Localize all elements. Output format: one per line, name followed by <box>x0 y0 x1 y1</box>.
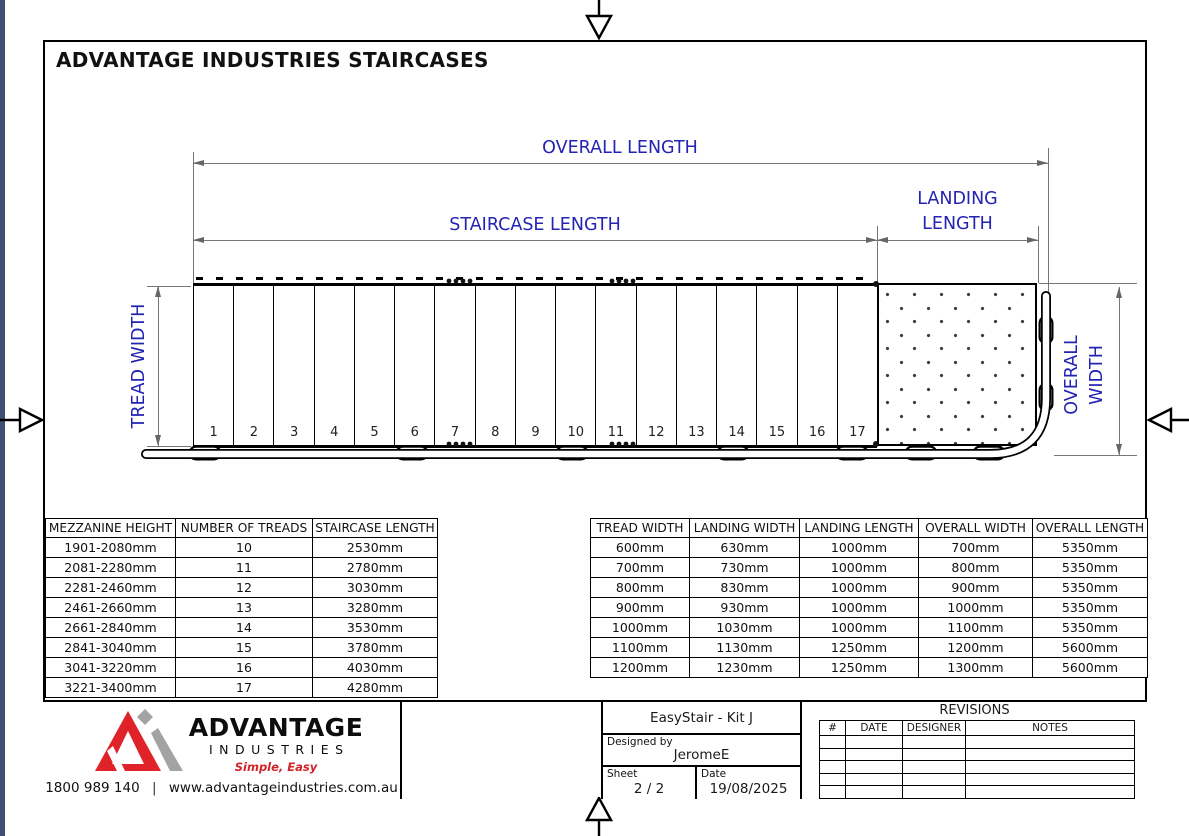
table-cell: 3030mm <box>313 578 438 598</box>
revision-empty-cell <box>820 786 846 799</box>
table-cell: 3530mm <box>313 618 438 638</box>
tread: 6 <box>395 286 435 445</box>
project-name: EasyStair - Kit J <box>603 702 800 735</box>
table-cell: 800mm <box>591 578 690 598</box>
revision-empty-cell <box>846 761 903 774</box>
table-cell: 1000mm <box>919 598 1033 618</box>
dim-line-landing-length <box>877 240 1038 241</box>
tread-number: 4 <box>330 425 338 445</box>
table-cell: 11 <box>176 558 313 578</box>
tread-number: 12 <box>648 425 665 445</box>
revisions-cell: REVISIONS #DATEDESIGNERNOTES <box>802 702 1147 799</box>
table-cell: 2081-2280mm <box>46 558 176 578</box>
label-overall-width-line1: OVERALL <box>1060 300 1085 450</box>
tread-number: 15 <box>769 425 786 445</box>
revision-empty-cell <box>903 773 966 786</box>
table-cell: 1130mm <box>690 638 800 658</box>
tread-number: 17 <box>849 425 866 445</box>
tread: 2 <box>234 286 274 445</box>
table-cell: 1000mm <box>800 598 919 618</box>
revision-empty-cell <box>820 773 846 786</box>
table-header-row: MEZZANINE HEIGHTNUMBER OF TREADSSTAIRCAS… <box>46 519 438 538</box>
tread: 9 <box>516 286 556 445</box>
table-row: 1100mm1130mm1250mm1200mm5600mm <box>591 638 1148 658</box>
tread: 16 <box>798 286 838 445</box>
table-row: 2081-2280mm112780mm <box>46 558 438 578</box>
sheet-box: Sheet 2 / 2 <box>603 767 697 799</box>
table-cell: 2841-3040mm <box>46 638 176 658</box>
tread-number: 6 <box>411 425 419 445</box>
designed-by-row: Designed by JeromeE <box>603 735 800 767</box>
table-cell: 1250mm <box>800 638 919 658</box>
contact-separator: | <box>152 780 157 796</box>
table-header-row: TREAD WIDTHLANDING WIDTHLANDING LENGTHOV… <box>591 519 1148 538</box>
brand-subtitle: INDUSTRIES <box>186 742 366 757</box>
revision-empty-cell <box>966 773 1135 786</box>
column-header: OVERALL LENGTH <box>1033 519 1148 538</box>
staircase-selection-table: MEZZANINE HEIGHTNUMBER OF TREADSSTAIRCAS… <box>45 518 438 698</box>
revisions-column-header: DESIGNER <box>903 721 966 736</box>
label-landing-length: LANDING LENGTH <box>877 187 1038 237</box>
tread-number: 7 <box>451 425 459 445</box>
revision-empty-cell <box>820 748 846 761</box>
table-cell: 1000mm <box>800 558 919 578</box>
column-header: STAIRCASE LENGTH <box>313 519 438 538</box>
label-overall-width: OVERALL WIDTH <box>1060 300 1110 450</box>
table-cell: 5350mm <box>1033 538 1148 558</box>
advantage-logo-icon <box>95 709 187 771</box>
table-cell: 4030mm <box>313 658 438 678</box>
revision-empty-cell <box>903 748 966 761</box>
sheet-value: 2 / 2 <box>603 781 695 797</box>
revision-empty-cell <box>846 786 903 799</box>
designer-name: JeromeE <box>603 747 800 763</box>
table-cell: 12 <box>176 578 313 598</box>
tread-number: 14 <box>728 425 745 445</box>
tread: 3 <box>274 286 314 445</box>
table-row: 2841-3040mm153780mm <box>46 638 438 658</box>
table-cell: 3221-3400mm <box>46 678 176 698</box>
table-cell: 830mm <box>690 578 800 598</box>
table-cell: 13 <box>176 598 313 618</box>
revision-empty-cell <box>820 736 846 749</box>
table-cell: 15 <box>176 638 313 658</box>
revision-empty-cell <box>903 786 966 799</box>
extension-line-right-overall <box>1048 148 1049 292</box>
table-cell: 2461-2660mm <box>46 598 176 618</box>
sheet-date-row: Sheet 2 / 2 Date 19/08/2025 <box>603 767 800 799</box>
tread-number: 8 <box>491 425 499 445</box>
table-cell: 1100mm <box>591 638 690 658</box>
sheet-label: Sheet <box>607 768 637 780</box>
page-title: ADVANTAGE INDUSTRIES STAIRCASES <box>56 48 489 72</box>
tread-number: 11 <box>608 425 625 445</box>
table-cell: 630mm <box>690 538 800 558</box>
tread-number: 16 <box>809 425 826 445</box>
phone-number: 1800 989 140 <box>45 780 139 796</box>
revision-empty-cell <box>820 761 846 774</box>
tread: 10 <box>556 286 596 445</box>
revision-empty-cell <box>846 773 903 786</box>
revisions-column-header: DATE <box>846 721 903 736</box>
revision-empty-cell <box>846 748 903 761</box>
tread: 7 <box>435 286 475 445</box>
table-cell: 16 <box>176 658 313 678</box>
revision-empty-row <box>820 736 1135 749</box>
table-cell: 800mm <box>919 558 1033 578</box>
registration-mark-bottom-icon <box>582 797 616 836</box>
tread: 1 <box>194 286 234 445</box>
revision-empty-cell <box>903 736 966 749</box>
table-cell: 1901-2080mm <box>46 538 176 558</box>
revisions-header-row: #DATEDESIGNERNOTES <box>820 721 1135 736</box>
table-row: 2461-2660mm133280mm <box>46 598 438 618</box>
column-header: OVERALL WIDTH <box>919 519 1033 538</box>
column-header: MEZZANINE HEIGHT <box>46 519 176 538</box>
revision-empty-row <box>820 748 1135 761</box>
table-cell: 1000mm <box>800 538 919 558</box>
dim-line-tread-width <box>158 286 159 446</box>
table-cell: 14 <box>176 618 313 638</box>
label-overall-length: OVERALL LENGTH <box>510 138 730 158</box>
table-row: 800mm830mm1000mm900mm5350mm <box>591 578 1148 598</box>
brand-name: ADVANTAGE <box>186 715 366 741</box>
table-cell: 1000mm <box>800 578 919 598</box>
project-info-cell: EasyStair - Kit J Designed by JeromeE Sh… <box>603 702 802 799</box>
table-row: 2661-2840mm143530mm <box>46 618 438 638</box>
table-row: 1200mm1230mm1250mm1300mm5600mm <box>591 658 1148 678</box>
table-cell: 3280mm <box>313 598 438 618</box>
tread-number: 5 <box>370 425 378 445</box>
brand-wordmark: ADVANTAGE INDUSTRIES Simple, Easy <box>186 715 366 774</box>
table-cell: 1300mm <box>919 658 1033 678</box>
tread: 13 <box>677 286 717 445</box>
table-cell: 900mm <box>591 598 690 618</box>
column-header: LANDING LENGTH <box>800 519 919 538</box>
revisions-column-header: NOTES <box>966 721 1135 736</box>
dim-line-staircase-length <box>193 240 877 241</box>
title-block: ADVANTAGE INDUSTRIES Simple, Easy 1800 9… <box>43 700 1147 797</box>
table-cell: 1230mm <box>690 658 800 678</box>
table-row: 600mm630mm1000mm700mm5350mm <box>591 538 1148 558</box>
tick-tread-width-top <box>147 286 191 287</box>
tread-nosing-marks <box>196 277 876 280</box>
tread: 12 <box>637 286 677 445</box>
website-url: www.advantageindustries.com.au <box>169 780 398 796</box>
column-header: LANDING WIDTH <box>690 519 800 538</box>
column-header: TREAD WIDTH <box>591 519 690 538</box>
label-landing-length-line2: LENGTH <box>877 212 1038 237</box>
table-cell: 600mm <box>591 538 690 558</box>
table-cell: 3041-3220mm <box>46 658 176 678</box>
table-cell: 930mm <box>690 598 800 618</box>
table-cell: 4280mm <box>313 678 438 698</box>
table-cell: 5350mm <box>1033 618 1148 638</box>
revision-empty-row <box>820 773 1135 786</box>
revision-empty-cell <box>966 786 1135 799</box>
table-cell: 5600mm <box>1033 638 1148 658</box>
revision-empty-cell <box>903 761 966 774</box>
dim-line-overall-length <box>193 163 1048 164</box>
width-options-table: TREAD WIDTHLANDING WIDTHLANDING LENGTHOV… <box>590 518 1148 678</box>
table-cell: 1000mm <box>591 618 690 638</box>
tread-number: 10 <box>567 425 584 445</box>
table-cell: 900mm <box>919 578 1033 598</box>
tread-number: 9 <box>531 425 539 445</box>
table-cell: 1000mm <box>800 618 919 638</box>
landing-plate <box>877 283 1037 446</box>
revision-empty-cell <box>966 736 1135 749</box>
table-row: 3221-3400mm174280mm <box>46 678 438 698</box>
tread: 15 <box>757 286 797 445</box>
tread: 17 <box>838 286 877 445</box>
table-row: 700mm730mm1000mm800mm5350mm <box>591 558 1148 578</box>
date-label: Date <box>701 768 726 780</box>
tread-number: 2 <box>250 425 258 445</box>
label-landing-length-line1: LANDING <box>877 187 1038 212</box>
table-row: 3041-3220mm164030mm <box>46 658 438 678</box>
tread: 4 <box>315 286 355 445</box>
tick-overall-width-top <box>1039 283 1137 284</box>
label-tread-width: TREAD WIDTH <box>129 286 151 446</box>
date-value: 19/08/2025 <box>697 781 800 797</box>
tread-number: 1 <box>209 425 217 445</box>
tread: 14 <box>717 286 757 445</box>
table-cell: 1030mm <box>690 618 800 638</box>
tread: 11 <box>596 286 636 445</box>
tick-overall-width-bottom <box>1054 455 1137 456</box>
extension-line-landing-right <box>1038 226 1039 283</box>
revisions-title: REVISIONS <box>802 702 1147 720</box>
drawing-sheet: ADVANTAGE INDUSTRIES STAIRCASES OVERALL … <box>0 0 1189 836</box>
label-overall-width-line2: WIDTH <box>1085 300 1110 450</box>
table-cell: 1200mm <box>591 658 690 678</box>
dim-line-overall-width <box>1119 287 1120 455</box>
label-staircase-length: STAIRCASE LENGTH <box>425 215 645 235</box>
table-row: 1000mm1030mm1000mm1100mm5350mm <box>591 618 1148 638</box>
registration-mark-right-icon <box>1147 404 1189 436</box>
table-cell: 2661-2840mm <box>46 618 176 638</box>
registration-mark-left-icon <box>0 404 44 436</box>
revision-empty-cell <box>966 761 1135 774</box>
extension-line-left <box>193 152 194 283</box>
table-cell: 2530mm <box>313 538 438 558</box>
revision-empty-cell <box>966 748 1135 761</box>
table-row: 2281-2460mm123030mm <box>46 578 438 598</box>
table-row: 900mm930mm1000mm1000mm5350mm <box>591 598 1148 618</box>
table-cell: 5350mm <box>1033 598 1148 618</box>
revision-empty-row <box>820 761 1135 774</box>
table-cell: 1100mm <box>919 618 1033 638</box>
revisions-column-header: # <box>820 721 846 736</box>
table-cell: 1200mm <box>919 638 1033 658</box>
revisions-table: #DATEDESIGNERNOTES <box>819 720 1135 799</box>
staircase-plan: 1234567891011121314151617 <box>193 283 877 448</box>
table-cell: 5350mm <box>1033 558 1148 578</box>
table-cell: 17 <box>176 678 313 698</box>
table-cell: 700mm <box>919 538 1033 558</box>
table-cell: 5350mm <box>1033 578 1148 598</box>
table-cell: 700mm <box>591 558 690 578</box>
tick-tread-width-bottom <box>147 446 191 447</box>
table-row: 1901-2080mm102530mm <box>46 538 438 558</box>
table-cell: 2281-2460mm <box>46 578 176 598</box>
brand-tagline: Simple, Easy <box>186 760 366 774</box>
table-cell: 3780mm <box>313 638 438 658</box>
date-box: Date 19/08/2025 <box>697 767 800 799</box>
table-cell: 5600mm <box>1033 658 1148 678</box>
empty-title-block-cell <box>402 702 603 799</box>
registration-mark-top-icon <box>582 0 616 40</box>
table-cell: 730mm <box>690 558 800 578</box>
tread-number: 3 <box>290 425 298 445</box>
contact-line: 1800 989 140 | www.advantageindustries.c… <box>43 780 400 796</box>
revision-empty-cell <box>846 736 903 749</box>
logo-cell: ADVANTAGE INDUSTRIES Simple, Easy 1800 9… <box>43 702 402 799</box>
tread: 5 <box>355 286 395 445</box>
table-cell: 1250mm <box>800 658 919 678</box>
revision-empty-row <box>820 786 1135 799</box>
table-cell: 2780mm <box>313 558 438 578</box>
tread: 8 <box>476 286 516 445</box>
column-header: NUMBER OF TREADS <box>176 519 313 538</box>
tread-number: 13 <box>688 425 705 445</box>
table-cell: 10 <box>176 538 313 558</box>
